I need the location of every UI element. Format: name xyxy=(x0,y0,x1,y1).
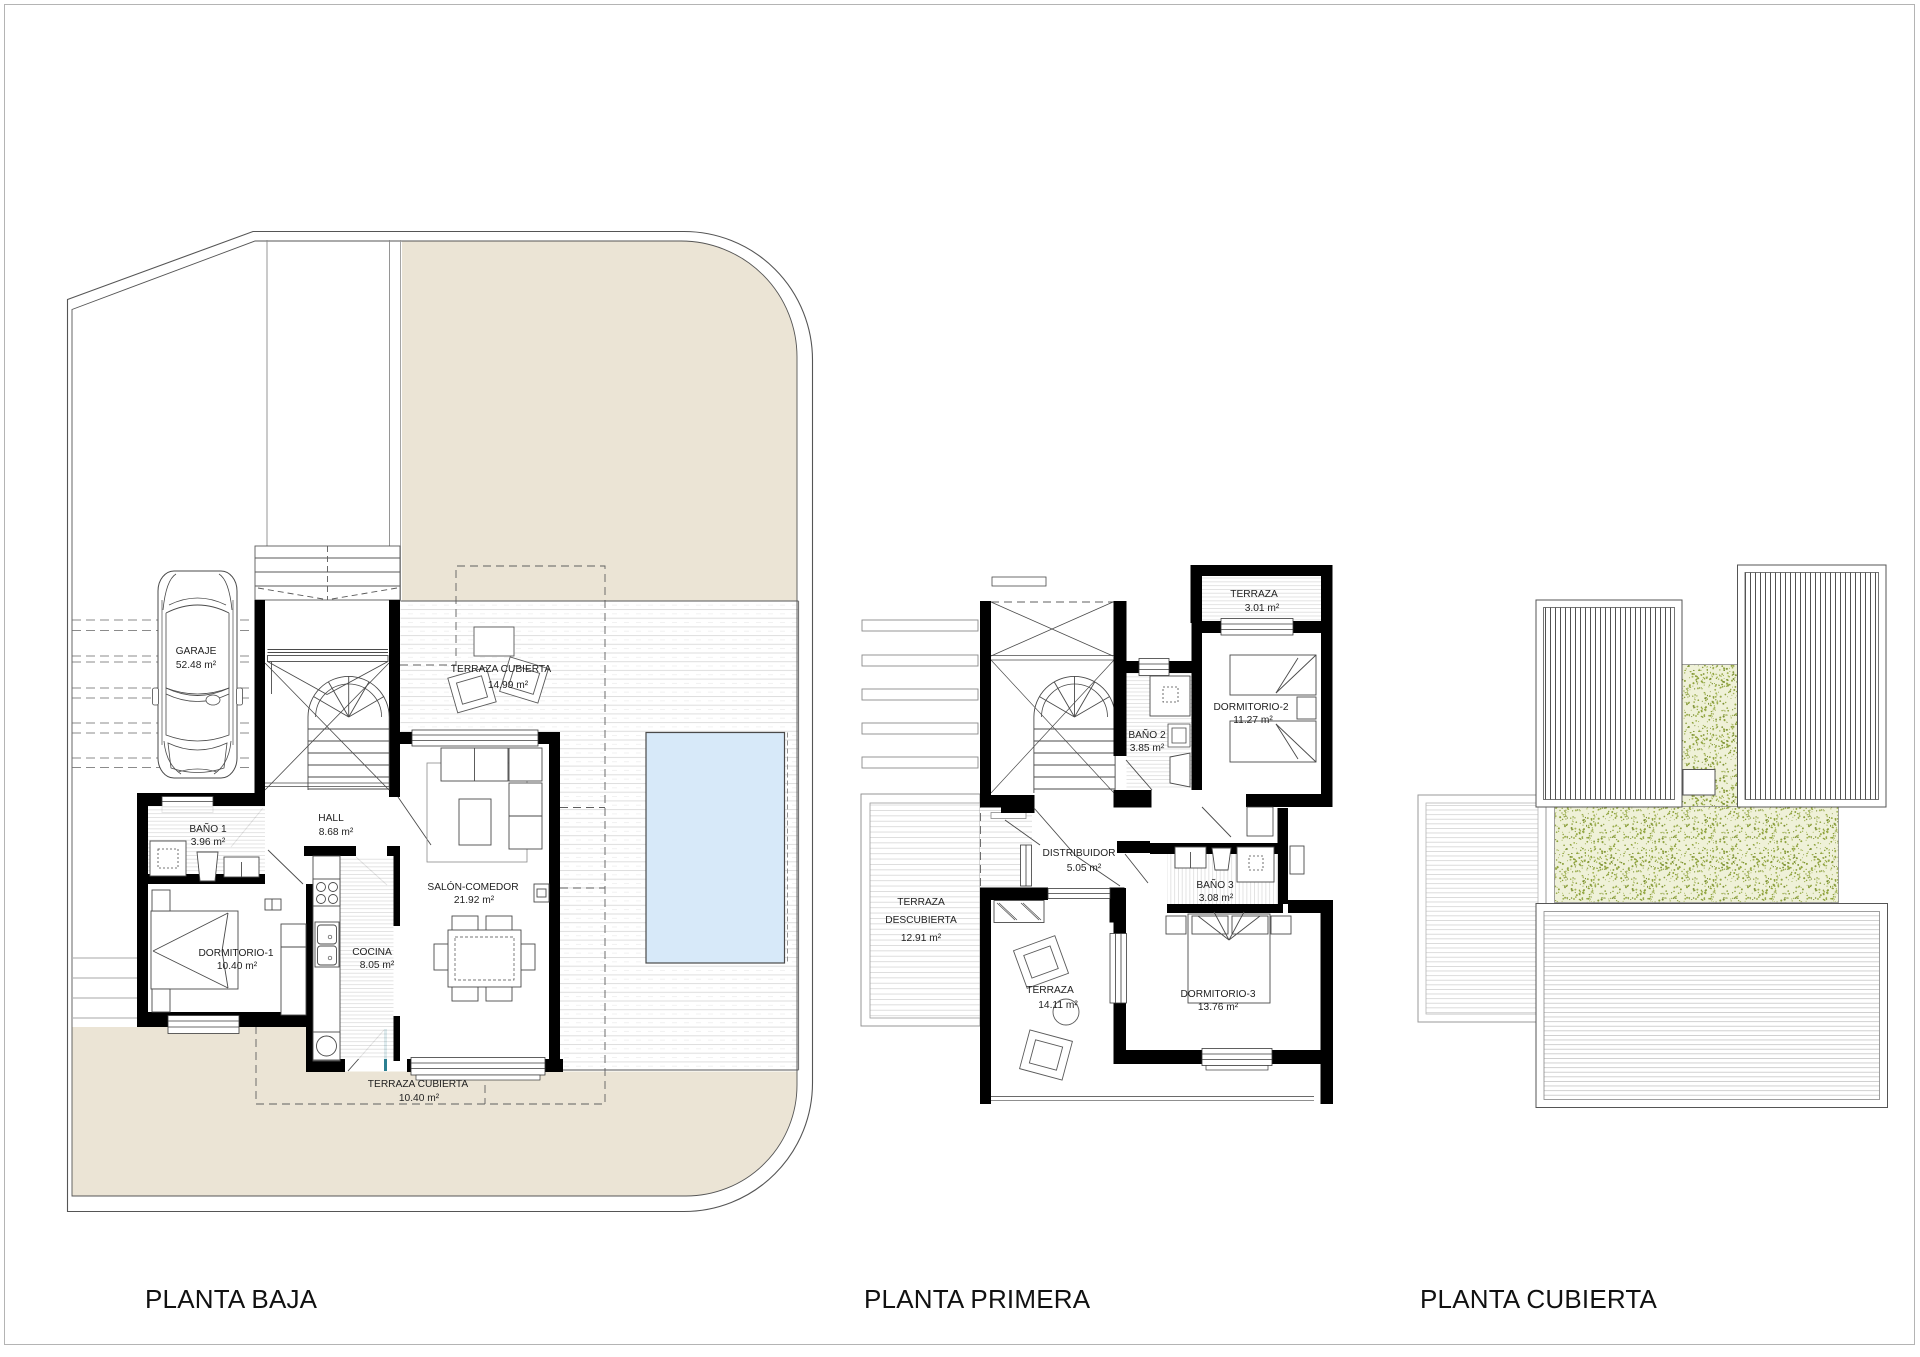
svg-text:14.11 m²: 14.11 m² xyxy=(1038,1000,1078,1011)
svg-text:DORMITORIO-3: DORMITORIO-3 xyxy=(1180,989,1255,1000)
svg-text:3.01 m²: 3.01 m² xyxy=(1245,603,1280,614)
svg-text:8.68 m²: 8.68 m² xyxy=(319,827,354,838)
svg-text:10.40 m²: 10.40 m² xyxy=(217,961,258,972)
svg-text:SALÓN-COMEDOR: SALÓN-COMEDOR xyxy=(427,880,518,893)
svg-text:11.27 m²: 11.27 m² xyxy=(1233,715,1273,726)
svg-text:8.05 m²: 8.05 m² xyxy=(360,960,395,971)
svg-text:BAÑO 3: BAÑO 3 xyxy=(1196,878,1234,891)
svg-text:BAÑO 2: BAÑO 2 xyxy=(1128,728,1166,741)
svg-text:TERRAZA: TERRAZA xyxy=(897,897,945,908)
svg-text:DESCUBIERTA: DESCUBIERTA xyxy=(885,915,957,926)
svg-text:HALL: HALL xyxy=(318,813,344,824)
svg-text:PLANTA PRIMERA: PLANTA PRIMERA xyxy=(864,1284,1091,1314)
svg-text:DISTRIBUIDOR: DISTRIBUIDOR xyxy=(1042,848,1115,859)
svg-text:13.76 m²: 13.76 m² xyxy=(1198,1002,1239,1013)
svg-text:14.99 m²: 14.99 m² xyxy=(488,680,529,691)
svg-text:BAÑO 1: BAÑO 1 xyxy=(189,822,227,835)
svg-text:21.92 m²: 21.92 m² xyxy=(454,895,495,906)
svg-text:5.05 m²: 5.05 m² xyxy=(1067,863,1102,874)
svg-text:52.48 m²: 52.48 m² xyxy=(176,660,217,671)
svg-text:3.96 m²: 3.96 m² xyxy=(191,837,226,848)
svg-text:DORMITORIO-1: DORMITORIO-1 xyxy=(198,948,273,959)
svg-text:COCINA: COCINA xyxy=(352,947,392,958)
svg-text:3.85 m²: 3.85 m² xyxy=(1130,743,1165,754)
svg-text:TERRAZA CUBIERTA: TERRAZA CUBIERTA xyxy=(368,1079,469,1090)
svg-text:12.91 m²: 12.91 m² xyxy=(901,933,942,944)
svg-text:DORMITORIO-2: DORMITORIO-2 xyxy=(1213,702,1288,713)
svg-text:TERRAZA: TERRAZA xyxy=(1230,589,1278,600)
svg-text:PLANTA CUBIERTA: PLANTA CUBIERTA xyxy=(1420,1284,1658,1314)
svg-text:TERRAZA: TERRAZA xyxy=(1026,985,1074,996)
svg-text:10.40 m²: 10.40 m² xyxy=(399,1093,440,1104)
svg-text:PLANTA BAJA: PLANTA BAJA xyxy=(145,1284,318,1314)
svg-text:TERRAZA CUBIERTA: TERRAZA CUBIERTA xyxy=(451,664,552,675)
svg-text:GARAJE: GARAJE xyxy=(176,646,217,657)
svg-text:3.08 m²: 3.08 m² xyxy=(1199,893,1234,904)
